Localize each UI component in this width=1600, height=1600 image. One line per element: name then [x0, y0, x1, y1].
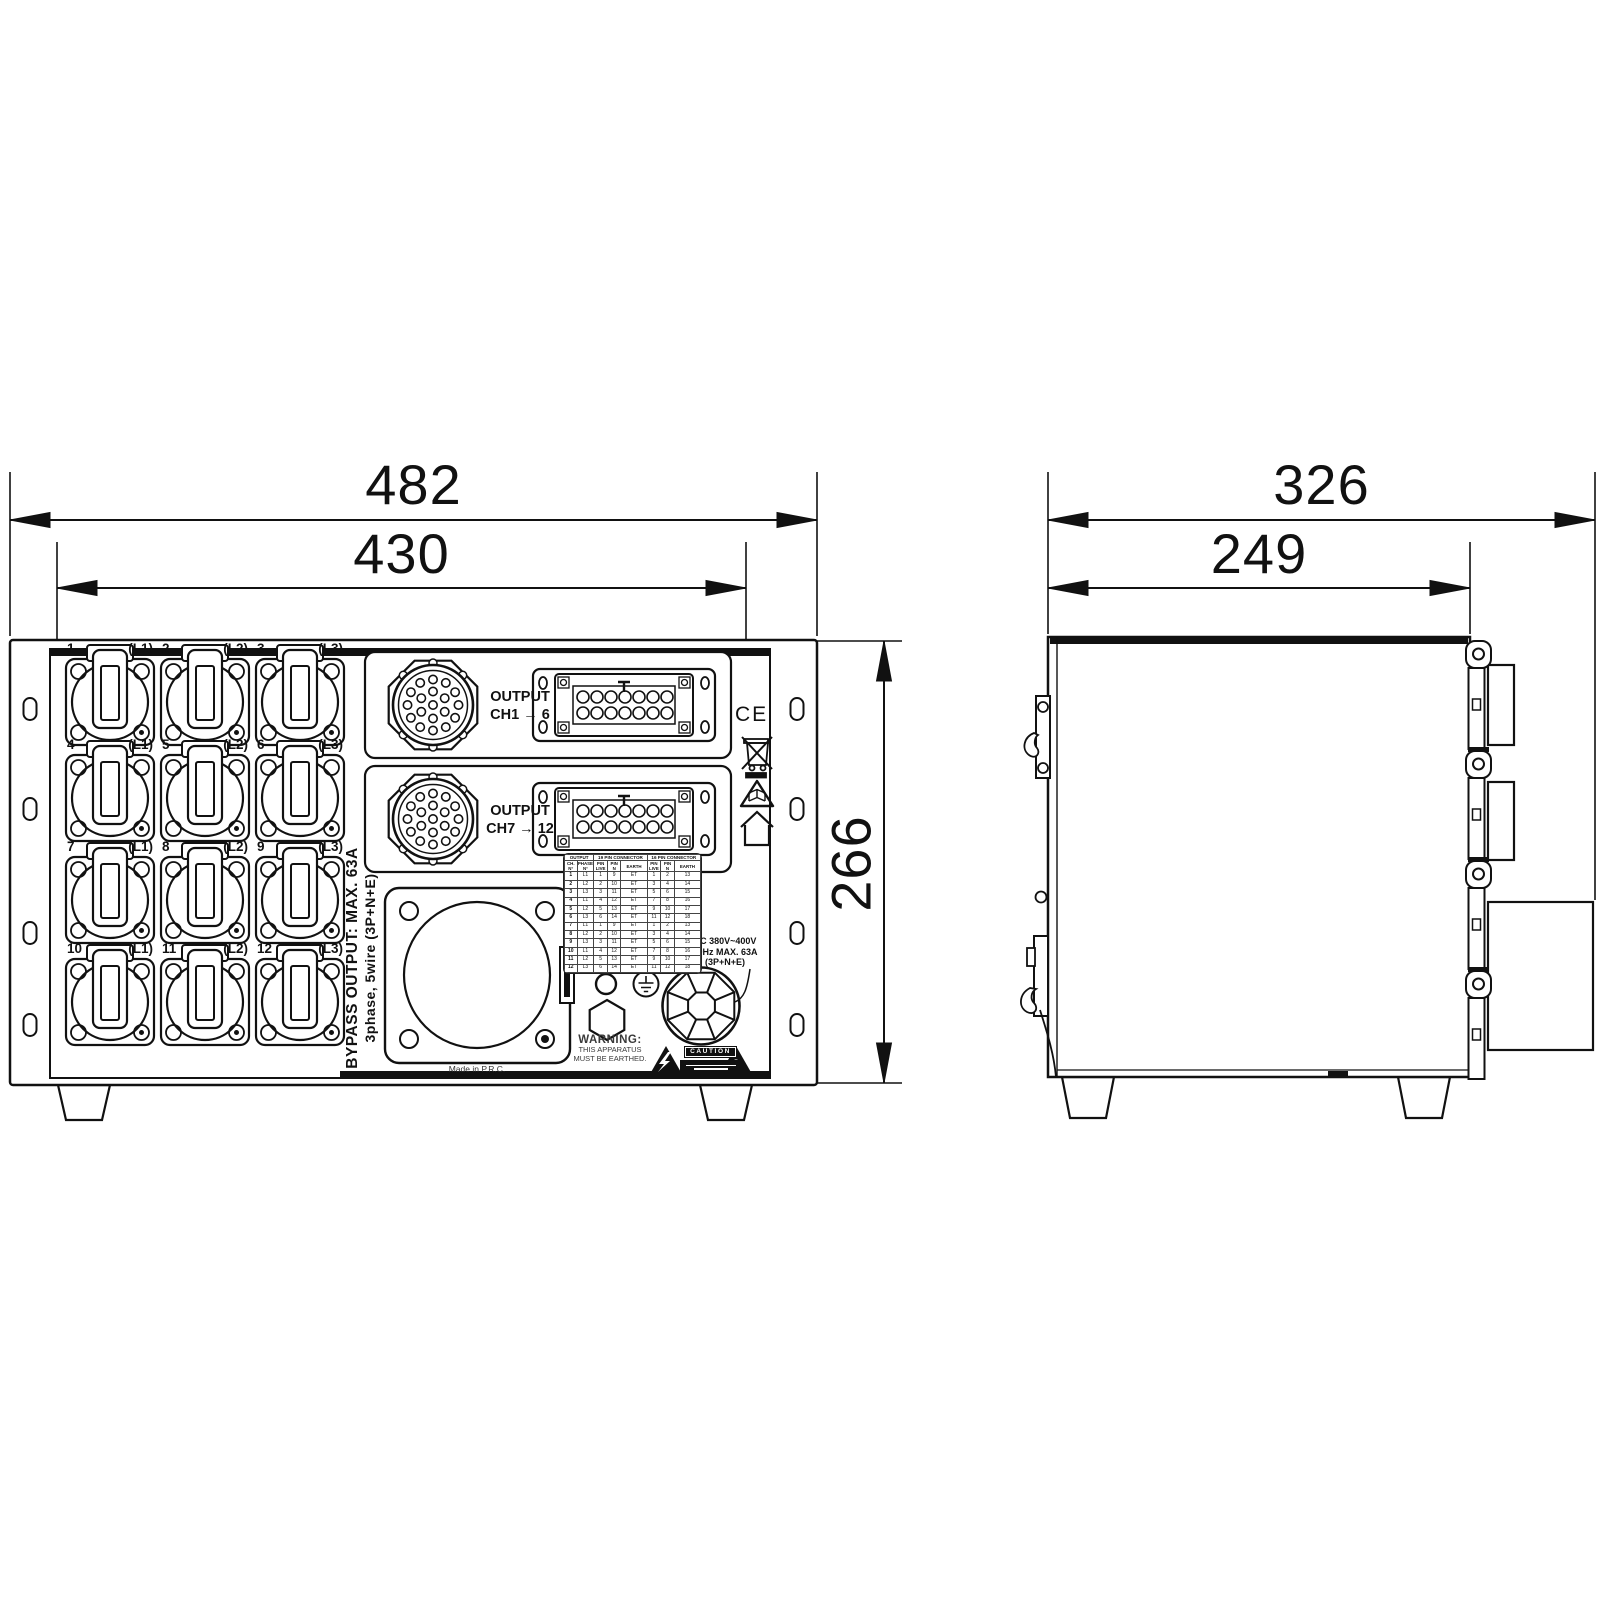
- pin-table-cell: 13: [607, 905, 621, 913]
- pin-table-cell: 11: [607, 889, 621, 897]
- line-art: !: [0, 0, 1600, 1600]
- pin-table-cell: 2: [594, 880, 608, 888]
- schuko-socket: [161, 945, 249, 1045]
- socket-number: 2: [162, 641, 170, 656]
- socket-number: 1: [67, 641, 75, 656]
- output-label-ch7-12: OUTPUT CH7 → 12: [482, 802, 558, 838]
- pin-table-cell: 3: [594, 889, 608, 897]
- pin-table-cell: 8: [661, 947, 675, 955]
- pin-table-cell: 14: [674, 931, 700, 939]
- pin-table-row: 1L119ET1213: [565, 872, 701, 880]
- socket-number: 7: [67, 839, 75, 854]
- pin-table-cell: L2: [577, 880, 594, 888]
- multipin-connector-16pin: [533, 669, 715, 741]
- pin-table-col-header: PIN N: [607, 861, 621, 872]
- pin-table-col-header: PHASE N°: [577, 861, 594, 872]
- socket-label: 1(L1): [66, 641, 154, 656]
- rear-connector-body: [1488, 782, 1514, 860]
- schuko-socket: [256, 741, 344, 841]
- pin-table-cell: 8: [565, 931, 578, 939]
- pin-table-cell: 12: [661, 964, 675, 972]
- pin-table-cell: 17: [674, 956, 700, 964]
- pin-table-cell: ET: [621, 931, 647, 939]
- dim-label-326: 326: [1048, 452, 1595, 517]
- socket-phase: (L3): [318, 839, 343, 854]
- multipin-connector-19pin: [389, 659, 478, 751]
- pin-table-cell: 2: [661, 872, 675, 880]
- pin-table-cell: 10: [661, 905, 675, 913]
- pin-table-cell: 5: [594, 956, 608, 964]
- pin-table-cell: ET: [621, 914, 647, 922]
- pin-table-cell: 10: [661, 956, 675, 964]
- caution-label: CAUTION: [684, 1046, 737, 1058]
- pin-table-col-header: CH. N°: [565, 861, 578, 872]
- pin-table-cell: 4: [565, 897, 578, 905]
- pin-table-col-header: EARTH: [621, 861, 647, 872]
- caution-fineprint-line: [694, 1068, 728, 1070]
- pin-table-cell: 10: [607, 931, 621, 939]
- schuko-socket: [256, 645, 344, 745]
- socket-number: 11: [162, 941, 176, 956]
- pin-table-cell: 7: [647, 947, 661, 955]
- socket-phase: (L3): [318, 941, 343, 956]
- pin-table-cell: 5: [647, 939, 661, 947]
- rear-bypass-body: [1488, 902, 1593, 1050]
- socket-phase: (L1): [128, 737, 153, 752]
- pin-table-cell: 3: [565, 889, 578, 897]
- socket-number: 8: [162, 839, 170, 854]
- pin-table-cell: 4: [594, 897, 608, 905]
- pin-table-cell: 14: [607, 914, 621, 922]
- multipin-connector-19pin: [389, 773, 478, 865]
- pin-table-cell: 6: [594, 964, 608, 972]
- socket-label: 12(L3): [256, 941, 344, 956]
- socket-phase: (L3): [318, 641, 343, 656]
- socket-number: 3: [257, 641, 265, 656]
- side-view: [1021, 637, 1593, 1118]
- dim-label-249: 249: [1048, 521, 1470, 586]
- socket-phase: (L2): [223, 641, 248, 656]
- pin-table-cell: 9: [607, 872, 621, 880]
- pin-table-row: 7L119ET1213: [565, 922, 701, 930]
- pin-table-row: 8L2210ET3414: [565, 931, 701, 939]
- pin-table-cell: 5: [565, 905, 578, 913]
- pin-table-cell: 12: [607, 947, 621, 955]
- earth-terminal-icon: [634, 972, 659, 997]
- pin-table-cell: 1: [594, 872, 608, 880]
- socket-label: 10(L1): [66, 941, 154, 956]
- socket-label: 2(L2): [161, 641, 249, 656]
- pin-table-cell: ET: [621, 897, 647, 905]
- pin-table-row: 10L1412ET7816: [565, 947, 701, 955]
- socket-label: 4(L1): [66, 737, 154, 752]
- pin-table-cell: ET: [621, 922, 647, 930]
- pin-table-cell: 3: [594, 939, 608, 947]
- pin-table-cell: 3: [647, 931, 661, 939]
- socket-label: 8(L2): [161, 839, 249, 854]
- pin-table-row: 2L2210ET3414: [565, 880, 701, 888]
- pin-table-group-header: 16 PIN CONNECTOR: [647, 855, 700, 861]
- pin-table-cell: L1: [577, 922, 594, 930]
- multipin-connector-16pin: [533, 783, 715, 855]
- pin-table-cell: 12: [661, 914, 675, 922]
- front-foot-left: [58, 1085, 110, 1120]
- pin-table-cell: 17: [674, 905, 700, 913]
- pin-table-row: 4L1412ET7816: [565, 897, 701, 905]
- pin-table-cell: 1: [647, 922, 661, 930]
- schuko-socket: [161, 741, 249, 841]
- pin-table-cell: 6: [594, 914, 608, 922]
- pin-table-cell: 18: [674, 914, 700, 922]
- pin-table-col-header: PIN LIVE: [594, 861, 608, 872]
- pin-table-row: 5L2513ET91017: [565, 905, 701, 913]
- pin-table-cell: 4: [594, 947, 608, 955]
- pin-table-cell: 12: [565, 964, 578, 972]
- pin-table-cell: L2: [577, 905, 594, 913]
- schuko-socket: [66, 645, 154, 745]
- pin-table-cell: 1: [565, 872, 578, 880]
- socket-number: 9: [257, 839, 265, 854]
- pin-table-row: 9L3311ET5615: [565, 939, 701, 947]
- schuko-socket: [66, 843, 154, 943]
- schuko-socket: [66, 741, 154, 841]
- indicator-hole: [596, 974, 616, 994]
- pin-table-cell: 13: [674, 922, 700, 930]
- pin-table-cell: 18: [674, 964, 700, 972]
- ce-mark: CE: [735, 703, 775, 727]
- output-range: CH7 → 12: [482, 820, 558, 838]
- pin-table-col-header: PIN N: [661, 861, 675, 872]
- bypass-output-label: BYPASS OUTPUT: MAX. 63A 3phase, 5wire (3…: [344, 828, 386, 1088]
- pin-table-cell: L1: [577, 897, 594, 905]
- pin-table-col-header: PIN LIVE: [647, 861, 661, 872]
- pin-table-cell: ET: [621, 889, 647, 897]
- pin-table-cell: 10: [607, 880, 621, 888]
- socket-label: 5(L2): [161, 737, 249, 752]
- side-foot-left: [1062, 1077, 1114, 1118]
- pin-table-cell: 9: [647, 905, 661, 913]
- socket-phase: (L2): [223, 941, 248, 956]
- dim-label-430: 430: [57, 521, 746, 586]
- pin-table-cell: L2: [577, 956, 594, 964]
- socket-phase: (L1): [128, 641, 153, 656]
- pin-table-cell: 9: [565, 939, 578, 947]
- dim-label-266: 266: [819, 804, 884, 924]
- pin-table-cell: ET: [621, 905, 647, 913]
- socket-label: 9(L3): [256, 839, 344, 854]
- pin-table-cell: ET: [621, 964, 647, 972]
- output-word: OUTPUT: [482, 802, 558, 820]
- pin-table-cell: L3: [577, 964, 594, 972]
- pin-table-cell: ET: [621, 947, 647, 955]
- pin-table-cell: 1: [594, 922, 608, 930]
- output-label-ch1-6: OUTPUT CH1 → 6: [482, 688, 558, 724]
- dim-label-482: 482: [10, 452, 817, 517]
- pin-table-row: 11L2513ET91017: [565, 956, 701, 964]
- pin-table-cell: 11: [607, 939, 621, 947]
- pin-table-cell: 2: [661, 922, 675, 930]
- socket-number: 4: [67, 737, 75, 752]
- pin-table-cell: 1: [647, 872, 661, 880]
- bypass-output-panel: [385, 888, 574, 1063]
- pin-table-cell: L3: [577, 939, 594, 947]
- schuko-socket: [161, 645, 249, 745]
- socket-number: 10: [67, 941, 82, 956]
- pin-table-group-header: 19 PIN CONNECTOR: [594, 855, 647, 861]
- pin-assignment-table: OUTPUT19 PIN CONNECTOR16 PIN CONNECTORCH…: [563, 853, 702, 974]
- pin-table-cell: 7: [647, 897, 661, 905]
- pin-table-cell: ET: [621, 956, 647, 964]
- socket-label: 6(L3): [256, 737, 344, 752]
- output-range: CH1 → 6: [482, 706, 558, 724]
- pin-table-row: 12L3614ET111218: [565, 964, 701, 972]
- pin-table-cell: 16: [674, 897, 700, 905]
- pin-table-cell: 15: [674, 939, 700, 947]
- front-foot-right: [700, 1085, 752, 1120]
- socket-phase: (L2): [223, 737, 248, 752]
- pin-table-cell: ET: [621, 872, 647, 880]
- pin-table-cell: 8: [661, 897, 675, 905]
- socket-phase: (L1): [128, 941, 153, 956]
- pin-table-cell: 13: [607, 956, 621, 964]
- socket-label: 7(L1): [66, 839, 154, 854]
- schuko-socket: [161, 843, 249, 943]
- rear-connector-body: [1488, 665, 1514, 745]
- socket-label: 3(L3): [256, 641, 344, 656]
- pin-table-cell: L3: [577, 889, 594, 897]
- pin-table-cell: 11: [565, 956, 578, 964]
- side-enclosure: [1048, 637, 1470, 1077]
- technical-drawing-page: !: [0, 0, 1600, 1600]
- socket-phase: (L2): [223, 839, 248, 854]
- made-in-label: Made in P.R.C.: [417, 1064, 537, 1074]
- pin-table-cell: 9: [647, 956, 661, 964]
- caution-fineprint-line: [686, 1065, 736, 1067]
- pin-table-cell: 2: [594, 931, 608, 939]
- pin-table-col-header: EARTH: [674, 861, 700, 872]
- warning-text: WARNING: THIS APPARATUS MUST BE EARTHED.: [563, 1034, 657, 1063]
- socket-number: 6: [257, 737, 265, 752]
- socket-number: 5: [162, 737, 170, 752]
- side-foot-right: [1398, 1077, 1450, 1118]
- caution-word: CAUTION: [685, 1047, 736, 1057]
- socket-phase: (L1): [128, 839, 153, 854]
- side-top-shadow: [1050, 638, 1468, 644]
- pin-table-cell: 11: [647, 964, 661, 972]
- pin-table-cell: 9: [607, 922, 621, 930]
- pin-table-cell: 6: [661, 939, 675, 947]
- bypass-line1: BYPASS OUTPUT: MAX. 63A: [344, 828, 362, 1088]
- pin-table-cell: ET: [621, 939, 647, 947]
- socket-label: 11(L2): [161, 941, 249, 956]
- socket-number: 12: [257, 941, 272, 956]
- pin-table-cell: 6: [661, 889, 675, 897]
- pin-table-cell: 5: [594, 905, 608, 913]
- pin-table-cell: 2: [565, 880, 578, 888]
- pin-table-cell: 12: [607, 897, 621, 905]
- pin-table-cell: 3: [647, 880, 661, 888]
- pin-table-cell: L3: [577, 914, 594, 922]
- socket-phase: (L3): [318, 737, 343, 752]
- pin-table-cell: 10: [565, 947, 578, 955]
- warning-line3: MUST BE EARTHED.: [563, 1055, 657, 1064]
- pin-table-cell: 14: [674, 880, 700, 888]
- pin-table-cell: 4: [661, 931, 675, 939]
- pin-table-cell: 4: [661, 880, 675, 888]
- bypass-line2: 3phase, 5wire (3P+N+E): [362, 828, 378, 1088]
- pin-table-cell: L1: [577, 872, 594, 880]
- pin-table-cell: 15: [674, 889, 700, 897]
- pin-table-cell: 6: [565, 914, 578, 922]
- pin-table-cell: L1: [577, 947, 594, 955]
- pin-table-cell: 11: [647, 914, 661, 922]
- schuko-socket: [66, 945, 154, 1045]
- pin-table-cell: 16: [674, 947, 700, 955]
- pin-table-cell: 13: [674, 872, 700, 880]
- schuko-socket: [256, 843, 344, 943]
- pin-table-row: 6L3614ET111218: [565, 914, 701, 922]
- pin-table-cell: L2: [577, 931, 594, 939]
- pin-table-cell: 14: [607, 964, 621, 972]
- output-word: OUTPUT: [482, 688, 558, 706]
- pin-table-cell: 7: [565, 922, 578, 930]
- pin-table-cell: 5: [647, 889, 661, 897]
- schuko-socket: [256, 945, 344, 1045]
- pin-table-row: 3L3311ET5615: [565, 889, 701, 897]
- caution-fineprint: [680, 1060, 741, 1074]
- pin-table-cell: ET: [621, 880, 647, 888]
